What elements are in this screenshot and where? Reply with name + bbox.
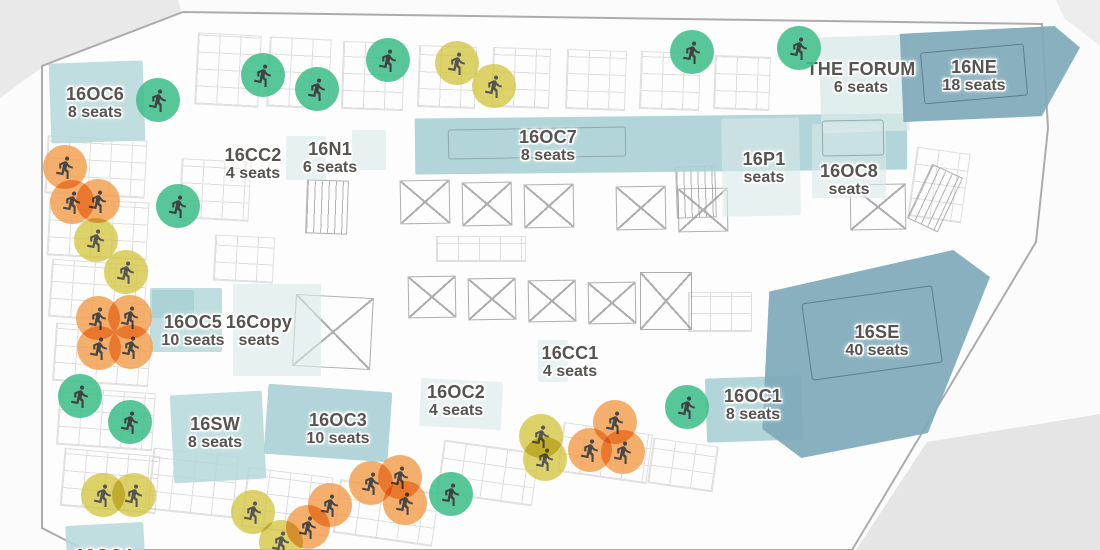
occupancy-marker-green[interactable] bbox=[670, 30, 714, 74]
person-running-icon bbox=[611, 440, 636, 465]
person-running-icon bbox=[122, 483, 147, 508]
occupancy-marker-green[interactable] bbox=[241, 53, 285, 97]
person-running-icon bbox=[393, 491, 418, 516]
person-running-icon bbox=[118, 410, 143, 435]
person-running-icon bbox=[86, 189, 111, 214]
person-running-icon bbox=[87, 336, 112, 361]
person-running-icon bbox=[578, 438, 603, 463]
floor-plan-canvas: 16OC6 8 seats 16CC2 4 seats 16N1 6 seats… bbox=[0, 0, 1100, 550]
person-running-icon bbox=[68, 384, 93, 409]
person-running-icon bbox=[439, 482, 464, 507]
person-running-icon bbox=[533, 447, 558, 472]
person-running-icon bbox=[84, 228, 109, 253]
person-running-icon bbox=[114, 260, 139, 285]
person-running-icon bbox=[146, 88, 171, 113]
occupancy-marker-green[interactable] bbox=[156, 184, 200, 228]
markers-layer bbox=[0, 0, 1100, 550]
occupancy-marker-yellow[interactable] bbox=[112, 473, 156, 517]
person-running-icon bbox=[305, 77, 330, 102]
occupancy-marker-orange[interactable] bbox=[383, 481, 427, 525]
person-running-icon bbox=[445, 51, 470, 76]
person-running-icon bbox=[318, 493, 343, 518]
person-running-icon bbox=[166, 194, 191, 219]
occupancy-marker-green[interactable] bbox=[295, 67, 339, 111]
occupancy-marker-green[interactable] bbox=[108, 400, 152, 444]
occupancy-marker-orange[interactable] bbox=[76, 179, 120, 223]
occupancy-marker-green[interactable] bbox=[777, 26, 821, 70]
occupancy-marker-yellow[interactable] bbox=[104, 250, 148, 294]
occupancy-marker-yellow[interactable] bbox=[472, 64, 516, 108]
occupancy-marker-green[interactable] bbox=[665, 385, 709, 429]
occupancy-marker-green[interactable] bbox=[366, 38, 410, 82]
occupancy-marker-orange[interactable] bbox=[109, 325, 153, 369]
occupancy-marker-yellow[interactable] bbox=[523, 437, 567, 481]
occupancy-marker-green[interactable] bbox=[429, 472, 473, 516]
occupancy-marker-green[interactable] bbox=[136, 78, 180, 122]
person-running-icon bbox=[787, 36, 812, 61]
person-running-icon bbox=[680, 40, 705, 65]
person-running-icon bbox=[376, 48, 401, 73]
occupancy-marker-orange[interactable] bbox=[308, 483, 352, 527]
occupancy-marker-green[interactable] bbox=[58, 374, 102, 418]
person-running-icon bbox=[119, 335, 144, 360]
occupancy-marker-orange[interactable] bbox=[601, 430, 645, 474]
person-running-icon bbox=[251, 63, 276, 88]
person-running-icon bbox=[675, 395, 700, 420]
person-running-icon bbox=[53, 155, 78, 180]
person-running-icon bbox=[482, 74, 507, 99]
person-running-icon bbox=[241, 500, 266, 525]
